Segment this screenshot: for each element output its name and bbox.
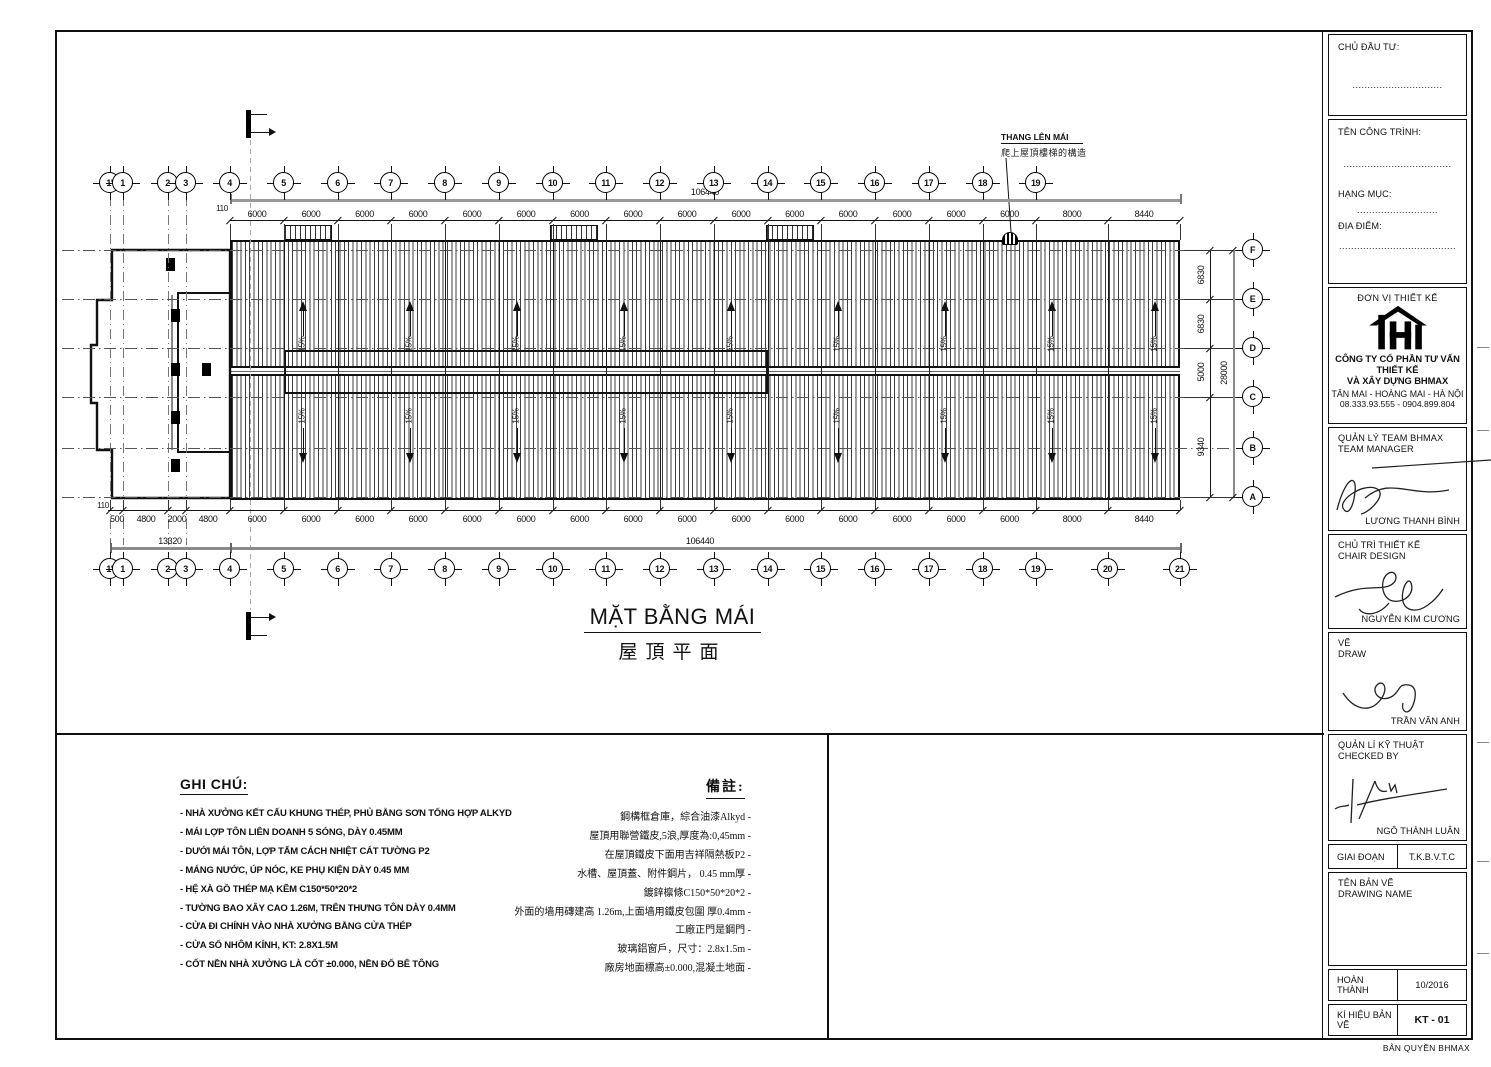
- annex-column: [171, 309, 180, 322]
- bubble-label: C: [1242, 386, 1263, 407]
- grid-bubble: 18: [966, 552, 1000, 586]
- tb-item-value: ...........................: [1329, 205, 1466, 215]
- dim-label: 6830: [1196, 266, 1206, 285]
- tb-code-value: KT - 01: [1398, 1014, 1466, 1026]
- dim-label: 6000: [570, 514, 589, 524]
- dim-witness: [929, 224, 930, 240]
- tb-company-line2: VÀ XÂY DỰNG BHMAX: [1329, 375, 1466, 386]
- bubble-label: B: [1242, 437, 1263, 458]
- note-item-cn: 鍍鋅檩條C150*50*20*2 -: [300, 884, 751, 899]
- tb-client-box: CHỦ ĐẦU TƯ: ............................…: [1328, 34, 1467, 116]
- roof-bay-line: [714, 240, 715, 500]
- grid-bubble: A: [1236, 480, 1270, 514]
- tb-client-value: ..............................: [1329, 80, 1466, 90]
- dim-label: 6000: [1000, 209, 1019, 219]
- grid-bubble: 12: [643, 166, 677, 200]
- note-item-cn: 工廠正門是鋼門 -: [300, 921, 751, 936]
- slope-arrow-up-line: [303, 310, 304, 336]
- slope-label: 15%: [1047, 408, 1056, 423]
- note-item-cn: 廠房地面標高±0.000,混凝土地面 -: [300, 959, 751, 974]
- ladder-leader-line: [998, 156, 1020, 234]
- roof-bay-line: [768, 240, 769, 500]
- tb-location-value: .......................................: [1329, 241, 1466, 251]
- checked-signature: [1331, 765, 1456, 825]
- roof-bay-line: [1108, 240, 1109, 500]
- dim-total-line-bottom: [110, 547, 1180, 550]
- slope-arrow-down-line: [1052, 428, 1053, 454]
- grid-bubble: 8: [428, 166, 462, 200]
- grid-line-vertical: [110, 196, 111, 545]
- bubble-label: 19: [1025, 172, 1046, 193]
- dim-label: 6000: [785, 209, 804, 219]
- dim-label: 6000: [624, 514, 643, 524]
- grid-bubble: 13: [697, 166, 731, 200]
- slope-arrow-down-line: [838, 428, 839, 454]
- dim-label: 6830: [1196, 315, 1206, 334]
- bubble-label: 17: [918, 558, 939, 579]
- bubble-label: 5: [273, 172, 294, 193]
- bubble-label: 14: [757, 558, 778, 579]
- bubble-label: 1: [112, 558, 133, 579]
- dim-witness: [1108, 224, 1109, 240]
- grid-bubble: 4: [213, 166, 247, 200]
- dim-label: 4800: [137, 514, 156, 524]
- grid-line-horizontal: [62, 348, 1243, 349]
- notes-box-divider: [827, 733, 829, 1038]
- bubble-label: 9: [488, 172, 509, 193]
- grid-bubble: 13: [697, 552, 731, 586]
- margin-mark: [1477, 953, 1489, 954]
- slope-arrow-down-line: [303, 428, 304, 454]
- dim-label: 110: [97, 501, 109, 510]
- dim-label: 6000: [463, 209, 482, 219]
- dim-label: 8440: [1135, 514, 1154, 524]
- bubble-label: 1: [112, 172, 133, 193]
- plan-title-vi: MẶT BẰNG MÁI: [584, 604, 762, 633]
- tb-item-label: HẠNG MỤC:: [1338, 189, 1466, 199]
- ladder-label-cn: 爬上屋頂樓梯的構造: [1001, 146, 1087, 159]
- slope-arrow-down-head: [513, 453, 521, 463]
- grid-line-vertical: [123, 196, 124, 545]
- tb-manager-box: QUẢN LÝ TEAM BHMAX TEAM MANAGER LƯƠNG TH…: [1328, 427, 1467, 531]
- note-item-cn: 外面的墙用磚建高 1.26m,上面墙用鐵皮包圍 厚0.4mm -: [300, 903, 751, 918]
- grid-bubble: B: [1236, 431, 1270, 465]
- dim-witness: [499, 500, 500, 510]
- dim-witness: [929, 500, 930, 510]
- slope-label: 15%: [940, 336, 949, 351]
- dim-witness: [983, 500, 984, 510]
- dim-witness: [1184, 299, 1240, 300]
- grid-bubble: 21: [1163, 552, 1197, 586]
- tb-checked-box: QUẢN LÍ KỸ THUẬT CHECKED BY NGÔ THÀNH LU…: [1328, 734, 1467, 841]
- grid-line-horizontal: [62, 497, 1243, 498]
- dim-label: 110: [216, 204, 228, 213]
- slope-arrow-down-line: [410, 428, 411, 454]
- dim-witness: [1184, 397, 1240, 398]
- roof-bay-line: [391, 240, 392, 500]
- tb-code-label: KÍ HIỆU BẢN VẼ: [1329, 1005, 1398, 1035]
- grid-bubble: 18: [966, 166, 1000, 200]
- grid-bubble: 6: [321, 552, 355, 586]
- grid-bubble: 17: [912, 166, 946, 200]
- slope-label: 15%: [726, 336, 735, 351]
- grid-bubble: 4: [213, 552, 247, 586]
- slope-label: 15%: [940, 408, 949, 423]
- roof-bay-line: [929, 240, 930, 500]
- dim-witness: [110, 500, 111, 510]
- annex-building: [85, 245, 235, 503]
- tb-checked-name: NGÔ THÀNH LUÂN: [1377, 826, 1460, 836]
- roof-bay-line: [875, 240, 876, 500]
- bubble-label: 3: [175, 558, 196, 579]
- roof-bay-line: [284, 240, 285, 500]
- slope-label: 15%: [833, 336, 842, 351]
- roof-bay-line: [499, 240, 500, 500]
- dim-witness: [714, 224, 715, 240]
- dim-witness: [186, 500, 187, 510]
- plan-title: MẶT BẰNG MÁI 屋頂平面: [565, 604, 780, 664]
- ladder-label-vi: THANG LÊN MÁI: [1001, 132, 1083, 144]
- tb-project-value: ....................................: [1329, 159, 1466, 169]
- tb-completed-row: HOÀN THÀNH 10/2016: [1328, 969, 1467, 1001]
- grid-bubble: 14: [751, 552, 785, 586]
- dim-witness: [284, 224, 285, 240]
- tb-manager-label1: QUẢN LÝ TEAM BHMAX: [1338, 433, 1466, 443]
- bubble-label: 8: [434, 172, 455, 193]
- dim-witness: [445, 500, 446, 510]
- dim-witness: [1036, 500, 1037, 510]
- roof-bay-line: [660, 240, 661, 500]
- bubble-label: E: [1242, 288, 1263, 309]
- title-block: CHỦ ĐẦU TƯ: ............................…: [1322, 30, 1474, 1040]
- slope-label: 15%: [512, 408, 521, 423]
- slope-label: 15%: [619, 336, 628, 351]
- grid-bubble: 9: [482, 552, 516, 586]
- note-item-cn: 水槽、屋頂蓋、附件鋼片， 0.45 mm厚 -: [300, 865, 751, 880]
- dim-label: 8000: [1063, 514, 1082, 524]
- dim-label: 6000: [517, 514, 536, 524]
- dim-label: 6000: [947, 514, 966, 524]
- grid-bubble: 7: [374, 166, 408, 200]
- grid-bubble: 19: [1019, 166, 1053, 200]
- grid-bubble: 5: [267, 166, 301, 200]
- dim-end-tick: [1180, 194, 1182, 204]
- bhmax-logo: [1367, 305, 1429, 351]
- bubble-label: 17: [918, 172, 939, 193]
- signature-tail-line: [1372, 455, 1491, 473]
- dim-label: 6000: [248, 209, 267, 219]
- tb-completed-label: HOÀN THÀNH: [1329, 970, 1398, 1000]
- bubble-label: 7: [380, 558, 401, 579]
- grid-line-horizontal: [62, 448, 1243, 449]
- dim-label: 6000: [517, 209, 536, 219]
- tb-drawing-name-label1: TÊN BẢN VẼ: [1338, 878, 1466, 888]
- dim-label: 6000: [302, 209, 321, 219]
- dim-witness: [714, 500, 715, 510]
- dim-label: 6000: [732, 514, 751, 524]
- tb-code-row: KÍ HIỆU BẢN VẼ KT - 01: [1328, 1004, 1467, 1036]
- slope-label: 15%: [1047, 336, 1056, 351]
- slope-arrow-down-line: [624, 428, 625, 454]
- roof-vent: [766, 225, 814, 240]
- annex-column: [202, 363, 211, 376]
- tb-stage-value: T.K.B.V.T.C: [1398, 852, 1466, 862]
- dim-line-bottom: [108, 510, 1180, 511]
- dim-witness: [338, 500, 339, 510]
- dim-witness: [230, 224, 231, 240]
- grid-bubble: 1: [106, 166, 140, 200]
- bubble-label: 6: [327, 172, 348, 193]
- grid-bubble: 9: [482, 166, 516, 200]
- bubble-label: 11: [595, 172, 616, 193]
- bubble-label: 18: [972, 558, 993, 579]
- dim-witness: [875, 500, 876, 510]
- dim-label: 5000: [1196, 363, 1206, 382]
- section-marker-top: [246, 110, 276, 140]
- grid-bubble: 10: [536, 552, 570, 586]
- dim-witness: [553, 224, 554, 240]
- slope-arrow-down-line: [945, 428, 946, 454]
- grid-bubble: 17: [912, 552, 946, 586]
- section-marker-bottom: [246, 612, 276, 642]
- bubble-label: 15: [810, 558, 831, 579]
- grid-bubble: 16: [858, 552, 892, 586]
- dim-witness: [1036, 224, 1037, 240]
- bubble-label: 4: [219, 172, 240, 193]
- notes-vi-title: GHI CHÚ:: [180, 776, 248, 795]
- grid-line-vertical: [186, 196, 187, 545]
- bubble-label: 10: [542, 172, 563, 193]
- notes-box-top-line: [55, 733, 1324, 735]
- slope-arrow-up-line: [838, 310, 839, 336]
- bubble-label: 10: [542, 558, 563, 579]
- dim-witness: [1180, 500, 1181, 510]
- dim-label: 6000: [839, 514, 858, 524]
- grid-bubble: 11: [589, 552, 623, 586]
- dim-label: 6000: [893, 209, 912, 219]
- plan-title-cn: 屋頂平面: [565, 637, 780, 664]
- tb-location-label: ĐỊA ĐIỂM:: [1338, 221, 1466, 231]
- dim-label: 6000: [785, 514, 804, 524]
- grid-bubble: 15: [804, 166, 838, 200]
- slope-arrow-down-line: [517, 428, 518, 454]
- dim-witness: [391, 500, 392, 510]
- bubble-label: 3: [175, 172, 196, 193]
- note-item-cn: 鋼構框倉庫，綜合油漆Alkyd -: [300, 808, 751, 823]
- roof-vent: [550, 225, 598, 240]
- dim-witness: [284, 500, 285, 510]
- slope-label: 15%: [405, 408, 414, 423]
- slope-arrow-up-line: [517, 310, 518, 336]
- roof-monitor-outline: [284, 350, 768, 394]
- slope-arrow-up-line: [1155, 310, 1156, 336]
- dim-label: 6000: [355, 514, 374, 524]
- grid-bubble: F: [1236, 233, 1270, 267]
- dim-label: 6000: [678, 209, 697, 219]
- grid-line-horizontal: [62, 397, 1243, 398]
- dim-label: 6000: [409, 514, 428, 524]
- dim-witness: [1180, 224, 1181, 240]
- slope-arrow-down-line: [1155, 428, 1156, 454]
- dim-witness: [123, 500, 124, 510]
- dim-label: 106440: [686, 536, 714, 546]
- draw-signature: [1331, 659, 1451, 717]
- bubble-label: 13: [703, 172, 724, 193]
- annex-column: [171, 411, 180, 424]
- roof-bay-line: [445, 240, 446, 500]
- slope-arrow-down-head: [941, 453, 949, 463]
- bubble-label: 12: [649, 172, 670, 193]
- dim-label: 8000: [1063, 209, 1082, 219]
- roof-bay-line: [821, 240, 822, 500]
- dim-witness: [983, 224, 984, 240]
- dim-witness: [230, 500, 231, 510]
- dim-label: 6000: [624, 209, 643, 219]
- tb-chair-label1: CHỦ TRÌ THIẾT KẾ: [1338, 540, 1466, 550]
- slope-arrow-down-line: [731, 428, 732, 454]
- tb-draw-box: VẼ DRAW TRẦN VĂN ANH: [1328, 632, 1467, 731]
- dim-total-line-right: [1233, 250, 1235, 497]
- grid-bubble: 15: [804, 552, 838, 586]
- dim-witness: [606, 500, 607, 510]
- bubble-label: 15: [810, 172, 831, 193]
- grid-bubble: C: [1236, 380, 1270, 414]
- margin-mark: [1477, 430, 1489, 431]
- dim-witness: [499, 224, 500, 240]
- slope-label: 15%: [833, 408, 842, 423]
- slope-arrow-down-head: [299, 453, 307, 463]
- slope-label: 15%: [405, 336, 414, 351]
- grid-bubble: E: [1236, 282, 1270, 316]
- dim-witness: [660, 500, 661, 510]
- bubble-label: 21: [1169, 558, 1190, 579]
- slope-arrow-up-line: [1052, 310, 1053, 336]
- dim-label: 6000: [409, 209, 428, 219]
- grid-bubble: 11: [589, 166, 623, 200]
- dim-line-right: [1210, 250, 1211, 497]
- grid-bubble: 12: [643, 552, 677, 586]
- bubble-label: 16: [864, 558, 885, 579]
- grid-bubble: 1: [106, 552, 140, 586]
- dim-label: 6000: [248, 514, 267, 524]
- dim-witness: [553, 500, 554, 510]
- grid-bubble: D: [1236, 331, 1270, 365]
- tb-phone: 08.333.93.555 - 0904.899.804: [1329, 399, 1466, 409]
- bubble-label: 6: [327, 558, 348, 579]
- roof-bay-line: [338, 240, 339, 500]
- bubble-label: 20: [1097, 558, 1118, 579]
- tb-project-label: TÊN CÔNG TRÌNH:: [1338, 127, 1466, 137]
- bubble-label: 8: [434, 558, 455, 579]
- roof-vent: [284, 225, 332, 240]
- dim-label: 6000: [678, 514, 697, 524]
- bubble-label: 5: [273, 558, 294, 579]
- tb-stage-row: GIAI ĐOẠN T.K.B.V.T.C: [1328, 844, 1467, 869]
- slope-label: 15%: [298, 408, 307, 423]
- dim-witness: [445, 224, 446, 240]
- dim-witness: [768, 224, 769, 240]
- bubble-label: 13: [703, 558, 724, 579]
- grid-bubble: 19: [1019, 552, 1053, 586]
- slope-label: 15%: [298, 336, 307, 351]
- grid-bubble: 3: [169, 166, 203, 200]
- bubble-label: 18: [972, 172, 993, 193]
- tb-company-line1: CÔNG TY CỔ PHẦN TƯ VẤN THIẾT KẾ: [1329, 353, 1466, 375]
- grid-bubble: 6: [321, 166, 355, 200]
- dim-witness: [168, 500, 169, 510]
- dim-label: 6000: [302, 514, 321, 524]
- dim-label: 28000: [1219, 361, 1229, 385]
- tb-chair-name: NGUYỄN KIM CƯƠNG: [1362, 614, 1461, 624]
- annex-column: [171, 363, 180, 376]
- tb-address: TÂN MAI - HOÀNG MAI - HÀ NỘI: [1329, 389, 1466, 399]
- dim-label: 500: [110, 514, 124, 524]
- grid-bubble: 3: [169, 552, 203, 586]
- margin-mark: [1477, 861, 1489, 862]
- dim-label: 6000: [1000, 514, 1019, 524]
- roof-bay-line: [553, 240, 554, 500]
- slope-arrow-down-head: [406, 453, 414, 463]
- tb-manager-name: LƯƠNG THANH BÌNH: [1365, 516, 1460, 526]
- grid-bubble: 16: [858, 166, 892, 200]
- tb-draw-label2: DRAW: [1338, 649, 1466, 659]
- grid-bubble: 5: [267, 552, 301, 586]
- dim-witness: [875, 224, 876, 240]
- roof-bay-line: [606, 240, 607, 500]
- grid-line-horizontal: [62, 299, 1243, 300]
- note-item-cn: 在屋頂鐵皮下面用吉祥隔熱板P2 -: [300, 846, 751, 861]
- tb-chair-box: CHỦ TRÌ THIẾT KẾ CHAIR DESIGN NGUYỄN KIM…: [1328, 534, 1467, 629]
- dim-label: 6000: [570, 209, 589, 219]
- dim-label: 4800: [199, 514, 218, 524]
- slope-arrow-up-line: [731, 310, 732, 336]
- slope-label: 15%: [726, 408, 735, 423]
- dim-label: 6000: [732, 209, 751, 219]
- bubble-label: D: [1242, 337, 1263, 358]
- dim-label: 6000: [893, 514, 912, 524]
- dim-label: 6000: [463, 514, 482, 524]
- tb-draw-name: TRẦN VĂN ANH: [1391, 716, 1460, 726]
- dim-witness: [768, 500, 769, 510]
- slope-label: 15%: [1150, 408, 1159, 423]
- dim-witness: [1108, 500, 1109, 510]
- dim-label: 6000: [355, 209, 374, 219]
- slope-arrow-down-head: [1048, 453, 1056, 463]
- tb-draw-label1: VẼ: [1338, 638, 1466, 648]
- chair-signature: [1331, 559, 1463, 615]
- dim-label: 9340: [1196, 438, 1206, 457]
- slope-arrow-up-line: [945, 310, 946, 336]
- tb-designer-label: ĐƠN VỊ THIẾT KẾ: [1329, 293, 1466, 303]
- grid-bubble: 7: [374, 552, 408, 586]
- slope-arrow-down-head: [834, 453, 842, 463]
- dim-witness: [606, 224, 607, 240]
- grid-bubble: 20: [1091, 552, 1125, 586]
- dim-label: 2000: [168, 514, 187, 524]
- tb-manager-label2: TEAM MANAGER: [1338, 444, 1466, 454]
- tb-stage-label: GIAI ĐOẠN: [1329, 845, 1398, 868]
- slope-arrow-up-line: [410, 310, 411, 336]
- bubble-label: 11: [595, 558, 616, 579]
- roof-bay-line: [983, 240, 984, 500]
- margin-mark: [1477, 742, 1489, 743]
- bubble-label: 19: [1025, 558, 1046, 579]
- grid-bubble: 8: [428, 552, 462, 586]
- slope-arrow-down-head: [1151, 453, 1159, 463]
- copyright-text: BẢN QUYỀN BHMAX: [1330, 1043, 1470, 1053]
- notes-cn-title: 備註:: [706, 776, 745, 799]
- drawing-sheet: THANG LÊN MÁI 爬上屋頂樓梯的構造 MẶT BẰNG MÁI 屋頂平…: [0, 0, 1491, 1067]
